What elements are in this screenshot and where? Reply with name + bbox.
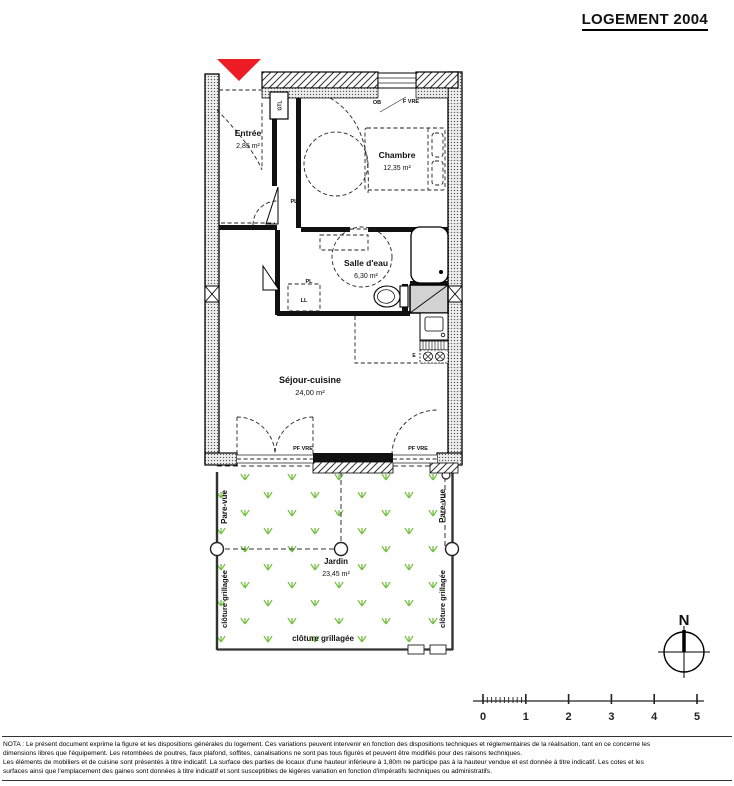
shower [411, 227, 448, 283]
room-area-entree: 2,85 m² [236, 143, 260, 150]
gtl-unit: GTL [270, 92, 288, 119]
terrace-hatch [430, 463, 458, 473]
wall-right [448, 72, 462, 464]
nota-footnote: NOTA : Le présent document exprime la fi… [2, 736, 732, 781]
door-right-label: PF VRE [408, 446, 428, 452]
bed-pillow [432, 133, 443, 157]
wall-left [205, 74, 219, 464]
window-fvre-label: F VRE [403, 99, 420, 105]
scale-bar: 0 1 2 3 4 5 [473, 694, 704, 723]
wall-top-inner [416, 88, 448, 98]
floor-plan-page: LOGEMENT 2004 [0, 0, 734, 786]
wall-hall-west [275, 230, 280, 315]
fixtures [374, 227, 448, 363]
gtl-label: GTL [278, 101, 284, 111]
ll-label: LL [301, 298, 308, 304]
cloture-label-left: clôture grillagée [220, 570, 229, 628]
kitchen-sink [420, 313, 448, 340]
nota-line: dimensions libres que l'équipement. Les … [3, 749, 731, 758]
entrance-arrow [217, 59, 261, 81]
terrace-hatch [313, 462, 393, 473]
wall-gtl [272, 118, 277, 186]
pl-label-hall: PL [305, 279, 313, 285]
cloture-label-right: clôture grillagée [438, 570, 447, 628]
room-label-jardin: Jardin [324, 557, 348, 566]
room-label-sejour: Séjour-cuisine [279, 375, 341, 385]
scale-tick-4: 4 [651, 711, 658, 723]
room-area-sejour: 24,00 m² [295, 388, 325, 397]
garden: Jardin 23,45 m² Pare-vue Pare-vue clôtur… [211, 466, 459, 654]
scale-tick-5: 5 [694, 711, 700, 723]
pare-vue-label-right: Pare-vue [438, 489, 447, 523]
gate-panel [408, 645, 424, 654]
fence-post [446, 543, 459, 556]
bed-pillow [432, 161, 443, 185]
wall-bottom [205, 453, 237, 465]
scale-minor-ticks [487, 697, 521, 703]
room-label-entree: Entrée [235, 128, 262, 138]
room-label-salle-eau: Salle d'eau [344, 258, 388, 268]
door-swing-terrace-left [237, 417, 275, 455]
room-area-jardin: 23,45 m² [322, 571, 350, 578]
wall-bottom [313, 453, 393, 462]
room-label-chambre: Chambre [379, 150, 416, 160]
scale-numbers: 0 1 2 3 4 5 [480, 711, 700, 723]
kitchen-hob [420, 341, 448, 363]
north-compass: N [658, 612, 710, 678]
wall-top-hatched [262, 72, 378, 88]
window-ob-label: OB [373, 100, 381, 106]
vanity [320, 235, 368, 250]
fence-post [211, 543, 224, 556]
scale-tick-2: 2 [566, 711, 572, 723]
technical-box [410, 285, 448, 313]
fence-post [335, 543, 348, 556]
cloture-label-bottom: clôture grillagée [292, 634, 354, 643]
window-chambre [378, 73, 416, 112]
wall-top-hatched [416, 72, 458, 88]
nota-line: NOTA : Le présent document exprime la fi… [3, 740, 731, 749]
scale-tick-3: 3 [608, 711, 614, 723]
room-area-salle-eau: 6,30 m² [354, 273, 378, 280]
gate-panel [430, 645, 446, 654]
floor-plan-drawing: Jardin 23,45 m² Pare-vue Pare-vue clôtur… [0, 0, 734, 786]
door-swing-entree [217, 110, 262, 170]
nota-line: Les éléments de mobiliers et de cuisine … [3, 758, 731, 767]
pl-label-entree: PL [290, 199, 298, 205]
wall-duct-symbol [205, 286, 219, 302]
wall-entree-chambre [296, 98, 301, 228]
door-left-label: PF VRE [293, 446, 313, 452]
room-labels: Entrée 2,85 m² Chambre 12,35 m² Salle d'… [235, 128, 416, 397]
room-area-chambre: 12,35 m² [383, 165, 411, 172]
turning-circle-chambre [304, 132, 368, 196]
scale-tick-0: 0 [480, 711, 486, 723]
wall-salle-eau-south [277, 311, 410, 316]
scale-tick-1: 1 [523, 711, 529, 723]
wall-entree-south [219, 225, 277, 230]
wall-duct-symbol [448, 286, 462, 302]
shower-drain [439, 270, 443, 274]
pare-vue-label-left: Pare-vue [220, 490, 229, 524]
door-leaf-entree [266, 187, 278, 224]
nota-line: surfaces ainsi que l'emplacement des gai… [3, 767, 731, 776]
kitchen-e-label: E [412, 353, 416, 359]
door-opening [237, 455, 313, 463]
wall-hall-north [301, 227, 350, 232]
toilet [374, 286, 408, 307]
